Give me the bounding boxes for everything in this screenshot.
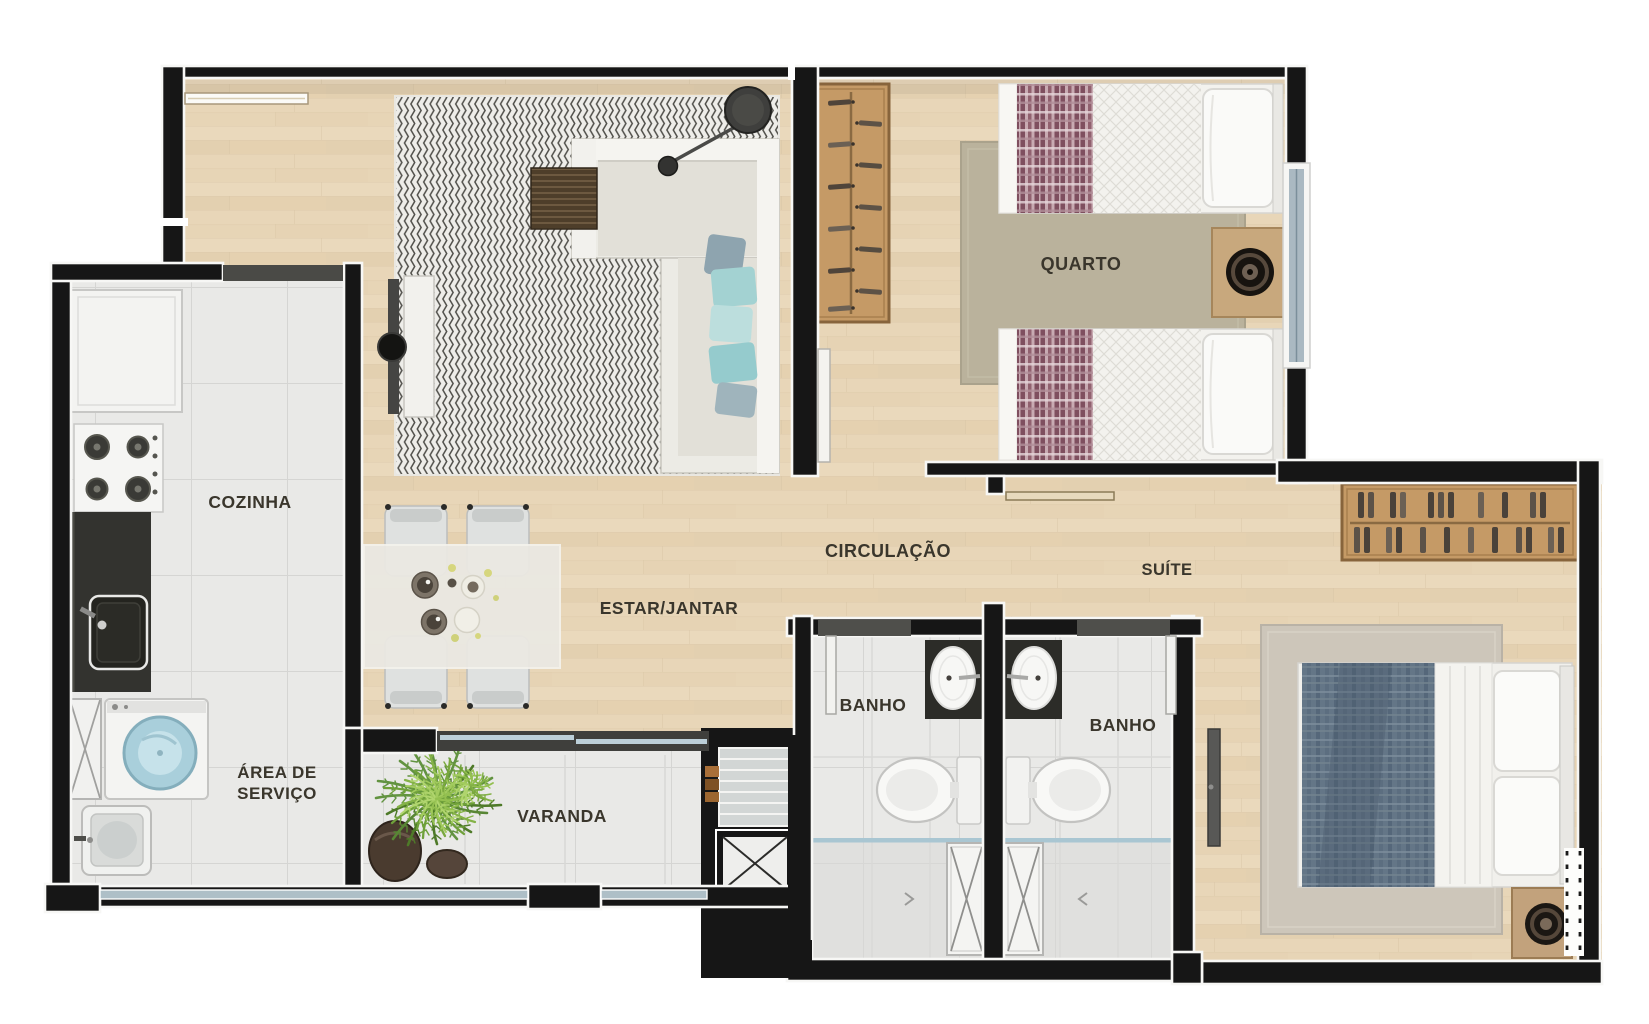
svg-text:BANHO: BANHO [840,695,907,715]
svg-text:BANHO: BANHO [1090,715,1157,735]
svg-text:VARANDA: VARANDA [517,806,607,826]
svg-text:ESTAR/JANTAR: ESTAR/JANTAR [600,598,739,618]
svg-text:SUÍTE: SUÍTE [1141,560,1192,579]
svg-text:CIRCULAÇÃO: CIRCULAÇÃO [825,540,951,561]
svg-text:ÁREA DE: ÁREA DE [237,763,316,782]
svg-text:COZINHA: COZINHA [208,492,291,512]
svg-text:QUARTO: QUARTO [1041,254,1122,274]
svg-text:SERVIÇO: SERVIÇO [237,784,317,803]
